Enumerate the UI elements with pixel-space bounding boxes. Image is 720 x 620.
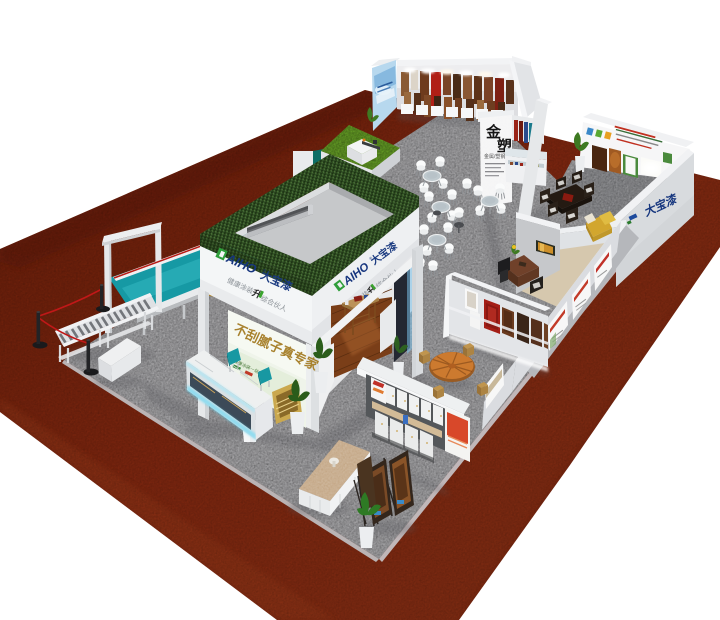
svg-text:金属/塑钢: 金属/塑钢 [484,153,505,160]
